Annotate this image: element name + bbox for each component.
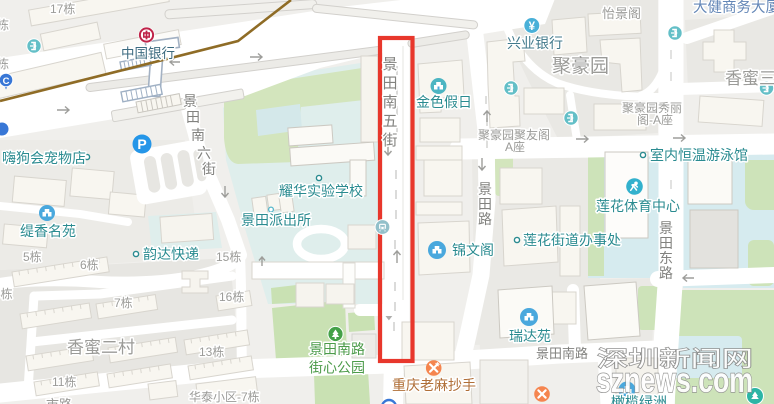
svg-text:华泰小区-7栋: 华泰小区-7栋: [189, 389, 260, 404]
svg-text:大健商务大厦: 大健商务大厦: [693, 0, 774, 16]
svg-text:A座: A座: [505, 139, 525, 154]
svg-text:景: 景: [382, 56, 397, 73]
svg-text:韵达快递: 韵达快递: [143, 246, 199, 262]
svg-text:景田南路: 景田南路: [536, 346, 588, 361]
svg-text:莲花体育中心: 莲花体育中心: [596, 198, 680, 214]
svg-text:街心公园: 街心公园: [309, 360, 365, 376]
svg-text:中国银行: 中国银行: [121, 46, 175, 61]
svg-text:室内恒温游泳馆: 室内恒温游泳馆: [650, 147, 748, 163]
svg-text:栋: 栋: [0, 56, 9, 71]
svg-text:五: 五: [382, 113, 397, 130]
svg-text:南: 南: [382, 94, 397, 111]
svg-text:莲花街道办事处: 莲花街道办事处: [523, 232, 621, 248]
svg-text:景: 景: [478, 181, 492, 197]
svg-text:景田南路: 景田南路: [309, 341, 365, 357]
svg-text:景田派出所: 景田派出所: [241, 212, 311, 228]
svg-text:田: 田: [478, 196, 492, 212]
svg-text:耀华实验学校: 耀华实验学校: [279, 183, 363, 199]
svg-text:景: 景: [183, 93, 197, 109]
svg-text:兴业银行: 兴业银行: [507, 35, 563, 51]
svg-text:景: 景: [659, 220, 673, 236]
svg-text:田: 田: [186, 109, 200, 125]
svg-text:嗨狗会宠物店: 嗨狗会宠物店: [2, 150, 86, 166]
svg-text:11栋: 11栋: [52, 374, 76, 389]
svg-text:P: P: [137, 136, 146, 152]
svg-text:5栋: 5栋: [23, 249, 42, 264]
svg-text:南: 南: [191, 127, 205, 143]
svg-text:6栋: 6栋: [80, 257, 99, 272]
svg-text:7栋: 7栋: [114, 295, 133, 310]
svg-text:街: 街: [382, 132, 397, 149]
svg-text:重庆老麻抄手: 重庆老麻抄手: [392, 377, 476, 393]
svg-text:香蜜三: 香蜜三: [725, 69, 774, 88]
svg-text:缇香名苑: 缇香名苑: [20, 223, 76, 239]
svg-text:16栋: 16栋: [219, 289, 244, 304]
svg-text:13栋: 13栋: [199, 344, 224, 359]
svg-text:田: 田: [382, 75, 397, 92]
svg-text:锦文阁: 锦文阁: [452, 242, 494, 258]
svg-text:17栋: 17栋: [50, 1, 75, 16]
svg-text:街: 街: [202, 161, 216, 177]
svg-text:瑞达苑: 瑞达苑: [509, 328, 551, 344]
svg-text:市路: 市路: [46, 397, 72, 404]
svg-text:¥: ¥: [529, 21, 536, 33]
svg-text:怡景阁: 怡景阁: [602, 6, 641, 21]
svg-text:路: 路: [478, 211, 492, 227]
svg-text:阁-A座: 阁-A座: [637, 112, 673, 127]
svg-text:金色假日: 金色假日: [416, 94, 472, 110]
svg-text:聚豪园: 聚豪园: [552, 55, 609, 77]
svg-text:田: 田: [659, 235, 673, 251]
svg-text:东: 东: [659, 250, 673, 266]
svg-text:C: C: [3, 76, 10, 87]
svg-text:香蜜二村: 香蜜二村: [67, 338, 135, 357]
svg-text:路: 路: [659, 265, 673, 281]
svg-text:六: 六: [197, 145, 211, 161]
svg-text:5栋: 5栋: [0, 286, 13, 301]
svg-text:sznews.com: sznews.com: [596, 361, 753, 400]
svg-text:15栋: 15栋: [216, 249, 241, 264]
svg-text:栋: 栋: [0, 17, 9, 32]
